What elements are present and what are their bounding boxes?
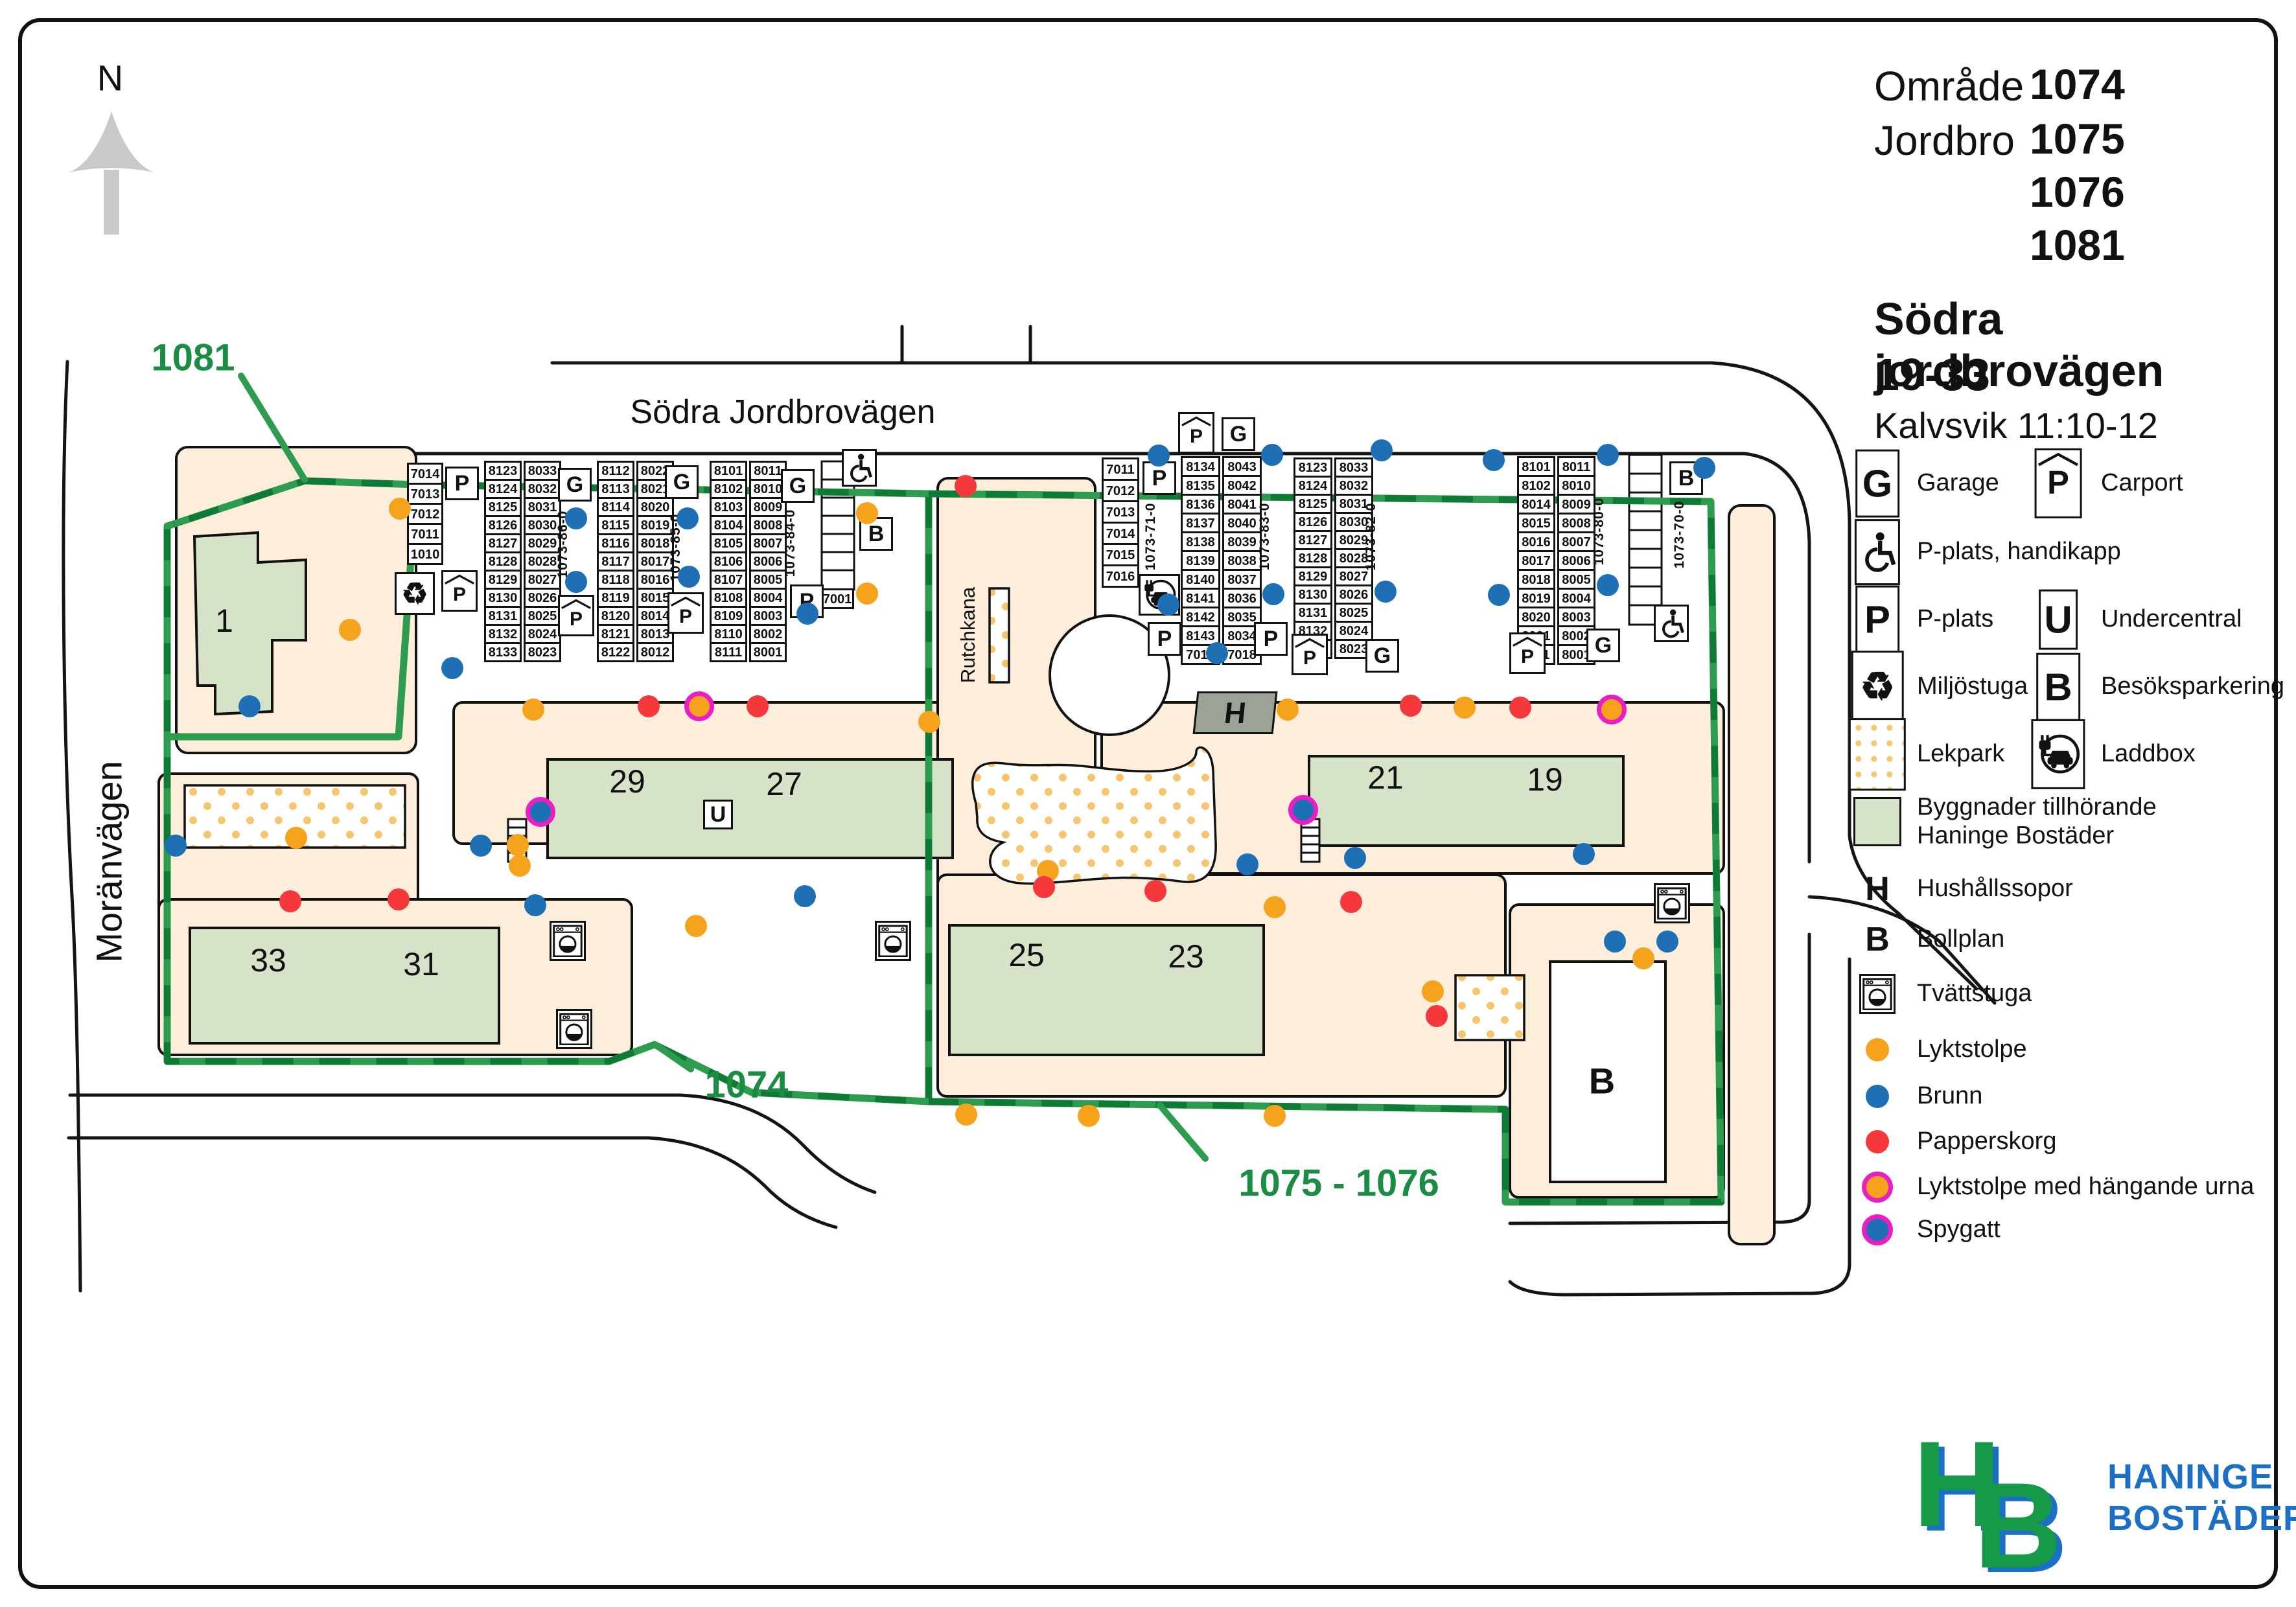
miljostuga-icon: ♻ — [395, 572, 435, 615]
dot-lyktstolpe — [522, 699, 544, 721]
parking-cell: 8101 — [1517, 456, 1555, 477]
parking-cell: 8129 — [484, 570, 522, 590]
dot-lyktstolpe — [856, 502, 878, 524]
parking-cell: 7014 — [407, 463, 443, 485]
dot-brunn — [1262, 583, 1284, 605]
hushallssopor-letter: H — [1865, 870, 1890, 908]
dot-papperskorg — [1400, 695, 1422, 717]
legend-label: P-plats — [1917, 605, 1993, 634]
miljostuga-icon: ♻ — [1851, 651, 1904, 723]
parking-cell: 8116 — [597, 533, 634, 553]
dot-papperskorg — [1033, 876, 1055, 898]
legend-label: Byggnader tillhörande Haninge Bostäder — [1917, 793, 2157, 850]
icon-letter: B — [868, 522, 885, 547]
dot-brunn — [1261, 444, 1283, 466]
carport-icon: P — [1178, 412, 1214, 454]
bollplan-letter: B — [1865, 920, 1890, 959]
dot-lyktstolpe — [1264, 896, 1286, 918]
dot-brunn — [1597, 444, 1619, 466]
garage-icon: G — [1365, 639, 1399, 673]
parking-cell: 8103 — [710, 497, 747, 517]
garage-icon: G — [1855, 450, 1899, 518]
dot-papperskorg — [388, 888, 410, 910]
dot-brunn — [441, 657, 463, 679]
parking-cell: 8016 — [1517, 531, 1555, 552]
parking-cell: 8010 — [1557, 475, 1595, 496]
carport-icon: P — [558, 595, 594, 636]
garage-icon: G — [1222, 417, 1255, 451]
dot-papperskorg — [279, 890, 301, 912]
icon-letter: U — [2044, 597, 2072, 642]
dot-lyktstolpe — [389, 498, 411, 520]
parking-cell: 7015 — [1102, 543, 1139, 566]
area-code-label: 1075 - 1076 — [1238, 1162, 1439, 1205]
parking-cell: 8007 — [749, 533, 787, 553]
parking-cell: 7011 — [407, 523, 443, 545]
dot-brunn — [565, 507, 587, 529]
dot-lyktstolpe — [507, 834, 529, 856]
building-number: 25 — [1008, 936, 1045, 974]
logo-mark-b: B — [1974, 1464, 2062, 1586]
parking-cell: 8125 — [1293, 494, 1332, 514]
carport-icon: P — [1509, 632, 1546, 674]
tvattstuga-icon — [550, 921, 586, 961]
street-label: Moränvägen — [88, 761, 130, 962]
parking-cell: 8024 — [524, 624, 561, 644]
dot-papperskorg — [1144, 880, 1166, 902]
parking-cell: 8002 — [749, 624, 787, 644]
icon-letter: G — [1862, 461, 1892, 505]
icon-letter: G — [1230, 422, 1247, 447]
parking-cell: 8126 — [1293, 512, 1332, 532]
parking-cell: 8130 — [484, 588, 522, 608]
parking-cell: 8119 — [597, 588, 634, 608]
dot-papperskorg — [747, 695, 769, 717]
parking-cell: 8037 — [1222, 569, 1262, 590]
parking-cell: 8137 — [1181, 513, 1220, 533]
dot-brunn — [796, 603, 818, 625]
recycle-glyph: ♻ — [1860, 664, 1895, 710]
dot-papperskorg — [1426, 1005, 1448, 1027]
parking-cell: 8023 — [524, 642, 561, 662]
building-number: 29 — [609, 763, 645, 800]
parking-cell: 8004 — [749, 588, 787, 608]
tvattstuga-icon — [556, 1009, 592, 1049]
parking-cell: 8008 — [1557, 513, 1595, 533]
logo-text-2: BOSTÄDER — [2107, 1498, 2296, 1538]
title-code-1076: 1076 — [2030, 167, 2125, 216]
parking-cell: 8009 — [1557, 494, 1595, 514]
parking-cell: 8003 — [749, 606, 787, 626]
dot-lyktstolpe — [918, 711, 940, 733]
legend-label: Miljöstuga — [1917, 673, 2028, 701]
p-plats-icon: P — [1254, 622, 1288, 656]
parking-cell: 7016 — [1102, 564, 1139, 588]
dot-papperskorg — [638, 695, 660, 717]
dot-brunn — [524, 894, 546, 916]
dot-lyktstolpe — [955, 1104, 977, 1126]
dot-brunn — [1371, 439, 1393, 461]
garage-icon: G — [781, 469, 815, 503]
dot-papperskorg — [1340, 891, 1362, 913]
parking-cell: 8015 — [1517, 513, 1555, 533]
tvattstuga-icon — [1654, 883, 1690, 923]
tvattstuga-icon — [1859, 974, 1896, 1014]
besoksparkering-icon: B — [2036, 653, 2080, 721]
legend-label: Lyktstolpe med hängande urna — [1917, 1173, 2254, 1201]
p-plats-icon: P — [1148, 622, 1181, 656]
legend-label: Laddbox — [2101, 740, 2196, 769]
icon-letter: U — [710, 802, 726, 827]
street-label: Rutchkana — [957, 587, 980, 683]
parking-cell: 8117 — [597, 551, 634, 572]
title-code-1074: 1074 — [2030, 60, 2125, 109]
parking-cell: 8039 — [1222, 531, 1262, 552]
garage-icon: G — [665, 465, 699, 499]
dot-brunn — [1374, 581, 1397, 603]
dot-lyktstolpe — [509, 855, 531, 877]
site-map-page: N Område 1074 Jordbro 1075 1076 1081 Söd… — [0, 0, 2296, 1607]
area-code-label: 1081 — [151, 336, 235, 380]
parking-cell: 8102 — [1517, 475, 1555, 496]
parking-cell: 7001 — [820, 588, 854, 609]
carport-icon: P — [2035, 448, 2082, 518]
parking-cell: 8118 — [597, 570, 634, 590]
parking-cell: 8104 — [710, 515, 747, 535]
title-code-1081: 1081 — [2030, 220, 2125, 270]
parking-area-label: 1073-70-0 — [1672, 501, 1687, 569]
logo-text-1: HANINGE — [2107, 1457, 2273, 1497]
parking-cell: 8006 — [1557, 550, 1595, 571]
title-subtitle: Kalvsvik 11:10-12 — [1874, 404, 2158, 446]
parking-cell: 8026 — [524, 588, 561, 608]
parking-cell: 7012 — [407, 503, 443, 525]
parking-cell: 8141 — [1181, 588, 1220, 608]
icon-letter: P — [1157, 627, 1172, 652]
legend-label: Bollplan — [1917, 925, 2004, 954]
parking-cell: 8122 — [597, 642, 634, 662]
parking-cell: 8132 — [484, 624, 522, 644]
parking-area-label: 1073-84-0 — [783, 509, 798, 577]
parking-area-label: 1073-80-0 — [1592, 498, 1607, 566]
parking-cell: 8004 — [1557, 588, 1595, 608]
area-code-label: 1074 — [704, 1063, 788, 1107]
dot-brunn — [1206, 642, 1228, 664]
legend-label: Brunn — [1917, 1082, 1982, 1111]
parking-cell: 8109 — [710, 606, 747, 626]
parking-cell: 8124 — [484, 479, 522, 499]
legend-label: Tvättstuga — [1917, 980, 2032, 1008]
parking-cell: 8108 — [710, 588, 747, 608]
parking-area-label: 1073-83-0 — [1257, 503, 1273, 571]
parking-cell: 8124 — [1293, 476, 1332, 496]
parking-cell: 7012 — [1102, 479, 1139, 502]
tvattstuga-icon — [875, 921, 911, 961]
legend-label: Undercentral — [2101, 605, 2242, 634]
parking-cell: 8042 — [1222, 475, 1262, 496]
building-number: 27 — [766, 765, 802, 803]
parking-cell: 8024 — [1334, 621, 1373, 641]
parking-cell: 8127 — [484, 533, 522, 553]
p-plats-icon: P — [1855, 586, 1899, 654]
building-number: 21 — [1367, 759, 1404, 796]
parking-cell: 8140 — [1181, 569, 1220, 590]
parking-cell: 8115 — [597, 515, 634, 535]
parking-cell: 8125 — [484, 497, 522, 517]
dot-red-swatch — [1866, 1130, 1889, 1153]
dot-lyktstolpe — [1454, 697, 1476, 719]
icon-letter: G — [1595, 633, 1612, 658]
lekpark-swatch — [1849, 718, 1906, 791]
carport-icon: P — [441, 570, 478, 612]
dot-brunn — [1693, 457, 1715, 479]
garage-icon: G — [558, 468, 592, 502]
parking-cell: 8033 — [524, 461, 561, 481]
parking-cell: 8032 — [524, 479, 561, 499]
building-number: 19 — [1527, 761, 1563, 798]
north-arrow — [69, 111, 154, 235]
dot-spygatt — [1288, 795, 1318, 825]
icon-letter: B — [1678, 466, 1695, 491]
parking-cell: 8019 — [1517, 588, 1555, 608]
parking-cell: 8003 — [1557, 607, 1595, 627]
building-swatch — [1853, 797, 1901, 846]
dot-brunn — [238, 695, 261, 717]
dot-lyktstolpe — [339, 619, 361, 641]
dot-brunn — [470, 835, 492, 857]
carport-icon: P — [1292, 634, 1328, 675]
recycle-glyph: ♻ — [401, 576, 428, 611]
title-area-label: Område — [1874, 62, 2024, 110]
dot-lyktstolpe — [285, 827, 307, 849]
building-number: 33 — [250, 942, 286, 979]
parking-cell: 8008 — [749, 515, 787, 535]
parking-cell: 8018 — [1517, 569, 1555, 590]
dot-brunn — [677, 507, 699, 529]
parking-cell: 8040 — [1222, 513, 1262, 533]
parking-cell: 7013 — [407, 483, 443, 505]
parking-cell: 8025 — [524, 606, 561, 626]
icon-letter: P — [1864, 597, 1890, 642]
parking-cell: 8126 — [484, 515, 522, 535]
parking-cell: 8007 — [1557, 531, 1595, 552]
parking-cell: 8107 — [710, 570, 747, 590]
dot-lyktstolpe — [685, 915, 707, 937]
parking-cell: 8114 — [597, 497, 634, 517]
parking-cell: 8106 — [710, 551, 747, 572]
parking-cell: 7013 — [1102, 500, 1139, 524]
parking-cell: 8001 — [749, 642, 787, 662]
dot-urna-swatch — [1862, 1172, 1893, 1203]
parking-cell: 8131 — [484, 606, 522, 626]
undercentral-icon: U — [703, 800, 733, 829]
parking-cell: 8142 — [1181, 607, 1220, 627]
parking-cell: 8005 — [1557, 569, 1595, 590]
building-number: 31 — [403, 945, 439, 983]
parking-cell: 8121 — [597, 624, 634, 644]
parking-cell: 8105 — [710, 533, 747, 553]
parking-cell: 8006 — [749, 551, 787, 572]
dot-brunn — [1656, 931, 1678, 953]
dot-papperskorg — [955, 475, 977, 497]
parking-cell: 8012 — [636, 642, 674, 662]
dot-brunn — [678, 566, 700, 588]
p-plats-icon: P — [445, 467, 479, 500]
parking-cell: 8038 — [1222, 550, 1262, 571]
handicap-icon — [842, 449, 877, 487]
dot-orange-swatch — [1866, 1038, 1889, 1061]
parking-cell: 8110 — [710, 624, 747, 644]
legend-label: Garage — [1917, 469, 1999, 498]
icon-letter: G — [566, 472, 583, 498]
handicap-icon — [1654, 605, 1689, 642]
parking-cell: 8131 — [1293, 603, 1332, 623]
parking-cell: 8112 — [597, 461, 634, 481]
parking-cell: 8135 — [1181, 475, 1220, 496]
parking-cell: 8134 — [1181, 456, 1220, 477]
dot-blue-swatch — [1866, 1085, 1889, 1108]
dot-brunn — [1157, 594, 1179, 616]
dot-lyktstolpe — [856, 583, 878, 605]
icon-letter: P — [1264, 627, 1279, 652]
parking-cell: 8041 — [1222, 494, 1262, 514]
dot-lyktstolpe — [1632, 947, 1654, 969]
street-label: Södra Jordbrovägen — [630, 393, 935, 432]
parking-cell: 8129 — [1293, 566, 1332, 586]
parking-cell: 8120 — [597, 606, 634, 626]
legend-label: P-plats, handikapp — [1917, 538, 2121, 566]
parking-cell: 8026 — [1334, 584, 1373, 605]
legend-label: Besöksparkering — [2101, 673, 2284, 701]
parking-cell: 8017 — [1517, 550, 1555, 571]
dot-brunn — [1344, 847, 1366, 869]
parking-cell: 1010 — [407, 543, 443, 565]
legend-label: Lyktstolpe — [1917, 1035, 2027, 1064]
garage-icon: G — [1586, 629, 1620, 662]
title-district: Jordbro — [1874, 117, 2015, 165]
parking-cell: 8139 — [1181, 550, 1220, 571]
parking-area-label: 1073-71-0 — [1143, 503, 1159, 571]
legend-label: Lekpark — [1917, 740, 2004, 769]
dot-brunn — [1236, 853, 1258, 875]
dot-lyktstolpe — [1422, 980, 1444, 1002]
title-street-numbers: 19-33 — [1874, 349, 1990, 400]
handicap-icon — [1855, 519, 1900, 585]
parking-cell: 8043 — [1222, 456, 1262, 477]
parking-cell: 8111 — [710, 642, 747, 662]
dot-brunn — [794, 885, 816, 907]
parking-cell: 8025 — [1334, 603, 1373, 623]
parking-cell: 8020 — [1517, 607, 1555, 627]
dot-brunn — [1573, 843, 1595, 865]
parking-cell: 7014 — [1102, 522, 1139, 545]
dot-lyktstolpe — [1078, 1105, 1100, 1127]
building-number: 1 — [215, 602, 233, 640]
dot-lyktstolpe-urna — [1597, 695, 1627, 724]
icon-letter: P — [1152, 466, 1167, 491]
parking-cell: 8011 — [1557, 456, 1595, 477]
icon-letter: G — [1374, 643, 1391, 669]
legend-label: Papperskorg — [1917, 1127, 2056, 1156]
dot-brunn — [1604, 931, 1626, 953]
parking-cell: 8036 — [1222, 588, 1262, 608]
bollplan-label: B — [1589, 1060, 1615, 1102]
legend-label: Spygatt — [1917, 1216, 2000, 1244]
parking-cell: 7011 — [1102, 457, 1139, 481]
parking-cell: 8014 — [1517, 494, 1555, 514]
parking-cell: 8032 — [1334, 476, 1373, 496]
dot-brunn — [565, 571, 587, 593]
dot-lyktstolpe — [1264, 1105, 1286, 1127]
dot-brunn — [165, 835, 187, 857]
legend-label: Carport — [2101, 469, 2183, 498]
carport-icon: P — [667, 592, 704, 634]
parking-cell: 8123 — [1293, 457, 1332, 478]
parking-cell: 8033 — [1334, 457, 1373, 478]
parking-cell: 8136 — [1181, 494, 1220, 514]
icon-letter: G — [673, 470, 690, 495]
parking-cell: 8113 — [597, 479, 634, 499]
dot-spygatt — [526, 797, 555, 827]
icon-letter: B — [2044, 664, 2072, 709]
dot-brunn — [1148, 445, 1170, 467]
parking-cell: 8138 — [1181, 531, 1220, 552]
dot-brunn — [1597, 574, 1619, 596]
title-code-1075: 1075 — [2030, 114, 2125, 163]
icon-letter: G — [789, 474, 806, 499]
parking-cell: 8102 — [710, 479, 747, 499]
parking-cell: 8127 — [1293, 530, 1332, 550]
dot-brunn — [1488, 584, 1510, 606]
dot-papperskorg — [1509, 697, 1531, 719]
laddbox-icon — [2031, 719, 2085, 789]
parking-cell: 8130 — [1293, 584, 1332, 605]
north-label: N — [97, 57, 123, 99]
parking-area-label: 1073-82-0 — [1363, 503, 1379, 571]
parking-cell: 8005 — [749, 570, 787, 590]
parking-cell: 8133 — [484, 642, 522, 662]
dot-lyktstolpe — [1277, 699, 1299, 721]
parking-cell: 8101 — [710, 461, 747, 481]
building-number: 23 — [1168, 938, 1204, 975]
legend-label: Hushållssopor — [1917, 875, 2073, 903]
parking-cell: 8128 — [484, 551, 522, 572]
dot-spygatt-swatch — [1862, 1214, 1893, 1245]
undercentral-icon: U — [2039, 590, 2078, 650]
dot-lyktstolpe-urna — [684, 691, 714, 721]
parking-cell: 8128 — [1293, 548, 1332, 568]
icon-letter: P — [455, 471, 470, 496]
hushallssopor-box: H — [1193, 691, 1278, 734]
parking-cell: 8123 — [484, 461, 522, 481]
haninge-bostader-logo: H B HANINGE BOSTÄDER — [1913, 1423, 2276, 1566]
dot-brunn — [1483, 449, 1505, 471]
